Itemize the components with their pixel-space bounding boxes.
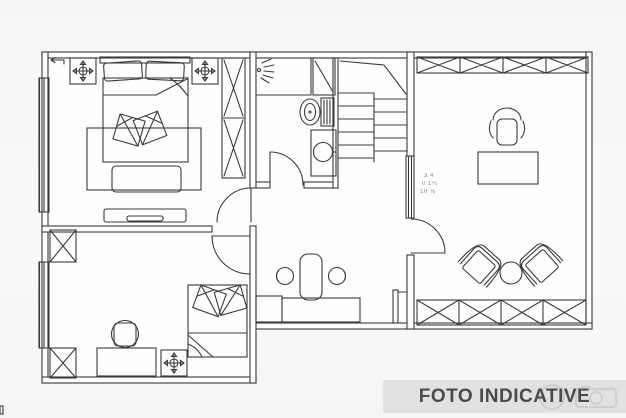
floor-plan-drawing: 3 4 0 1¼ 10 ⅛ xyxy=(0,0,626,418)
svg-text:0 1¼: 0 1¼ xyxy=(422,181,438,187)
svg-text:3 4: 3 4 xyxy=(424,173,434,179)
svg-text:10 ⅛: 10 ⅛ xyxy=(420,189,436,195)
camera-icon xyxy=(534,384,620,410)
floor-plan-image: 3 4 0 1¼ 10 ⅛ xyxy=(0,0,626,418)
scan-artifact xyxy=(0,406,3,414)
floor-area xyxy=(42,52,592,383)
watermark-banner: FOTO INDICATIVE xyxy=(383,380,626,413)
